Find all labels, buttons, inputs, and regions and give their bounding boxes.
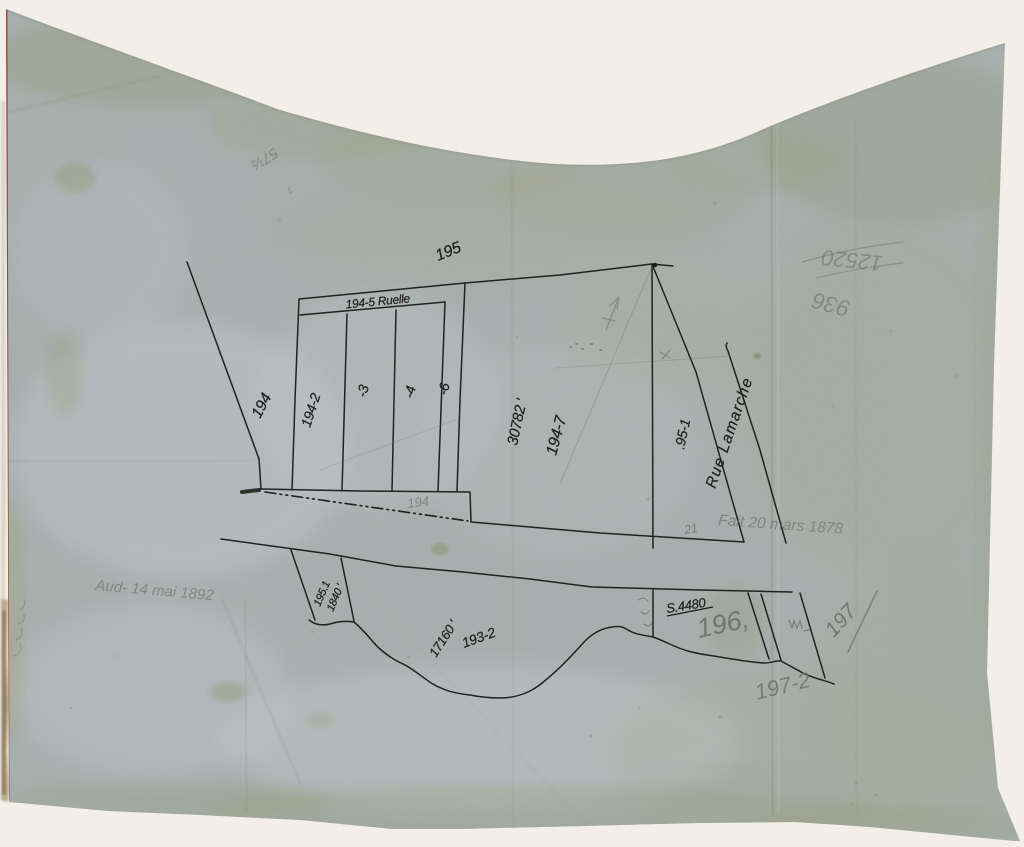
svg-text:21: 21 xyxy=(682,521,699,537)
svg-text:194: 194 xyxy=(406,493,430,511)
